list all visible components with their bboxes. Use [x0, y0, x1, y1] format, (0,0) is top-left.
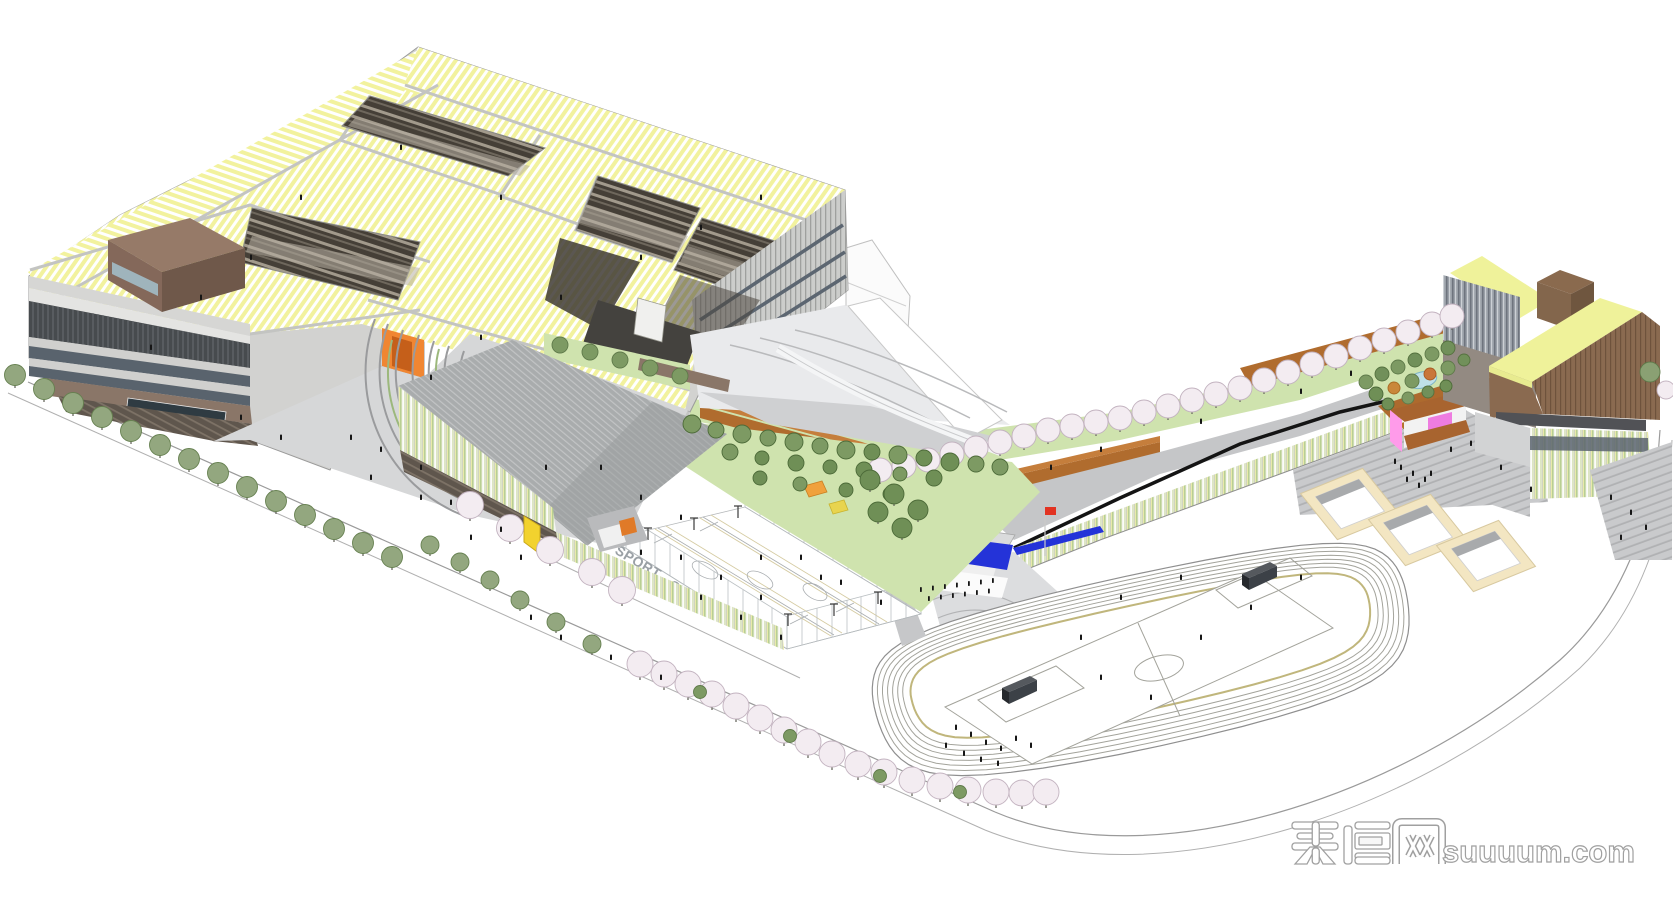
svg-text:suuuum.com: suuuum.com — [1442, 834, 1635, 869]
